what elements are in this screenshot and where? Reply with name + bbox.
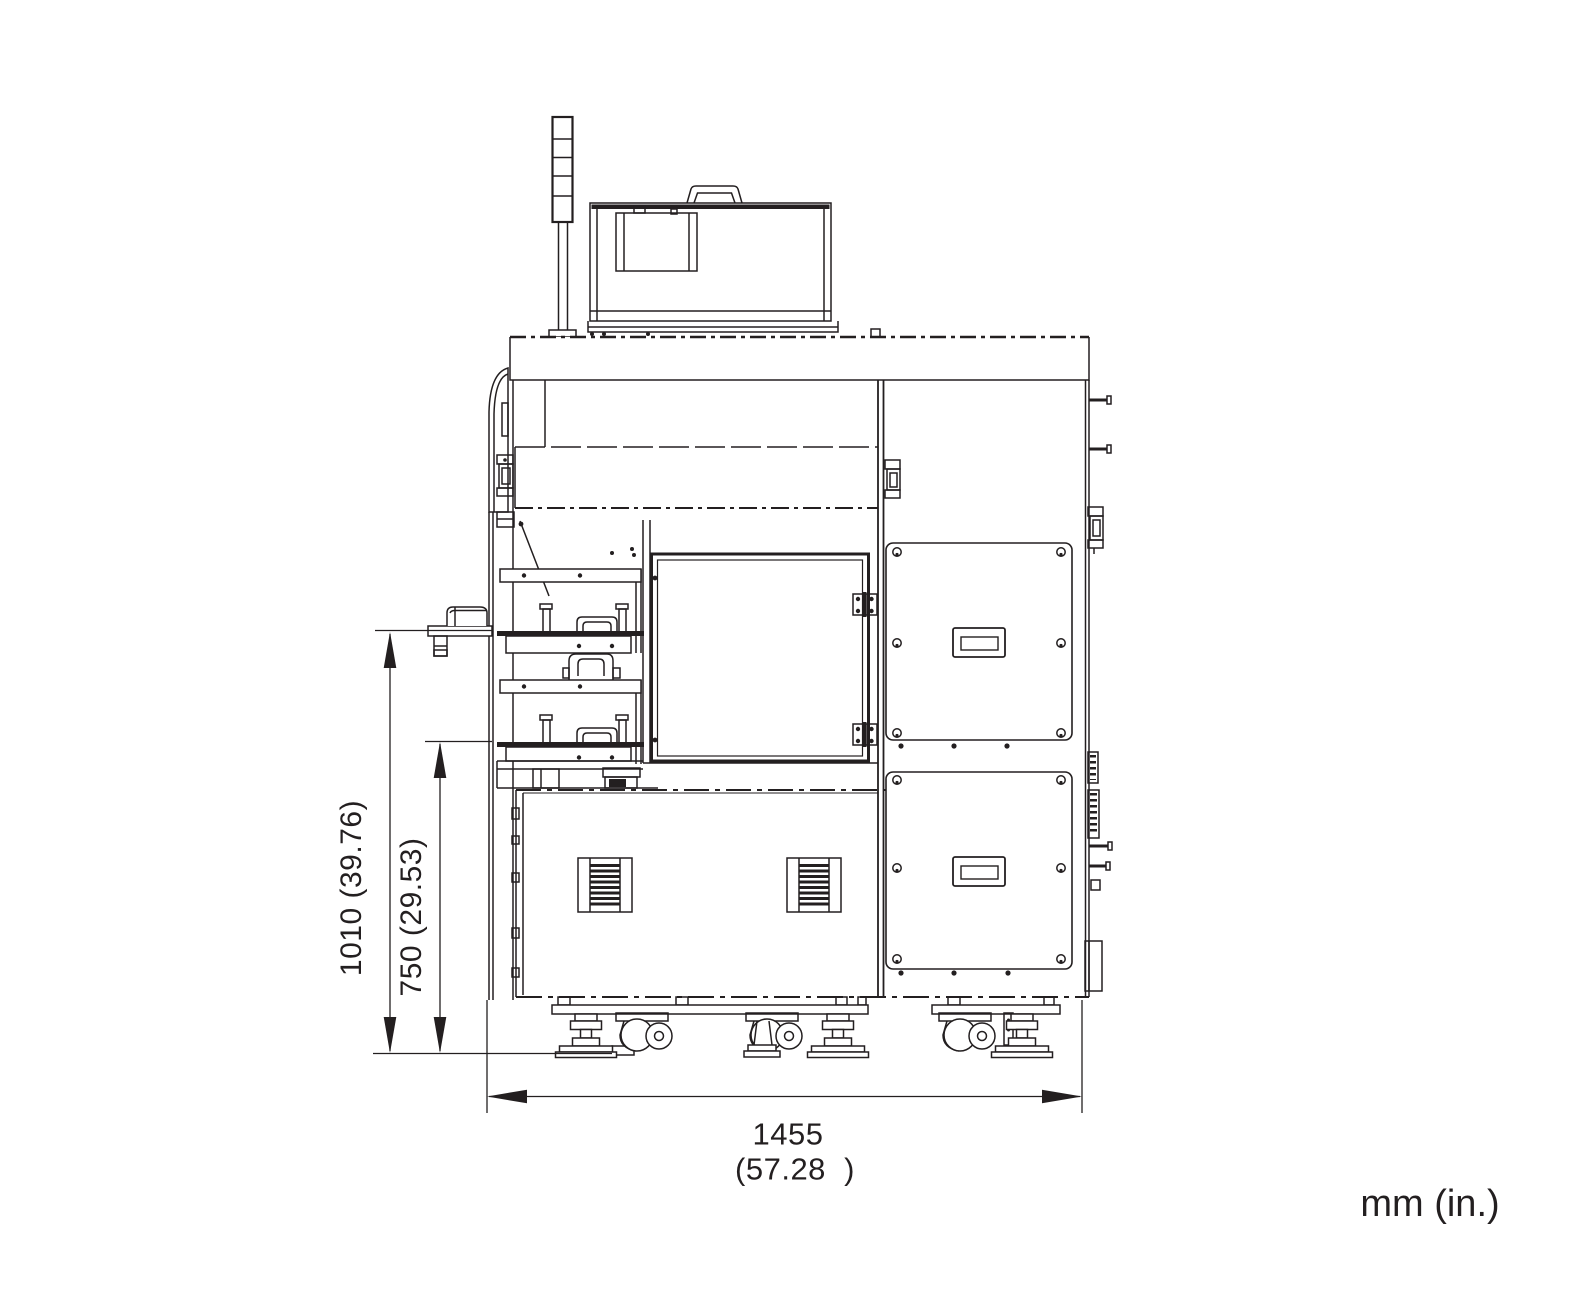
dimension-drawing: 1010 (39.76) 750 (29.53) 1455 (57.28 ) m… [0,0,1576,1301]
tray-center-bracket [563,654,620,681]
leveling-foot [556,1014,617,1058]
caster-wheel [939,1013,995,1051]
lower-cabinet [512,790,886,997]
leveling-foot [992,1013,1053,1058]
center-door [630,520,878,763]
dimension-label-width-mm: 1455 [753,1119,824,1150]
top-unit [588,186,838,332]
machine-top-band [510,329,1089,380]
tray-assembly-upper [428,569,654,656]
vent-grille-left [578,858,632,912]
caster-wheel [612,1013,672,1055]
vent-grille-right [787,858,841,912]
leveling-foot [808,1014,869,1058]
signal-tower-icon [549,117,576,337]
machine-line-art [0,0,1576,1301]
tray-assembly-lower [497,680,654,764]
dimension-label-width-in: (57.28 ) [735,1154,855,1185]
tray-side-arm [428,607,492,656]
right-door-upper [886,543,1072,749]
units-note: mm (in.) [1360,1185,1499,1223]
tray-base-platform [497,761,658,788]
top-unit-monitor [616,213,697,271]
dimension-label-overall-height: 1010 (39.76) [337,800,367,976]
right-door-lower [886,772,1072,976]
machine-mid-bands [515,380,878,508]
machine-base [516,997,1089,1058]
dimension-label-tray-height: 750 (29.53) [397,838,427,997]
